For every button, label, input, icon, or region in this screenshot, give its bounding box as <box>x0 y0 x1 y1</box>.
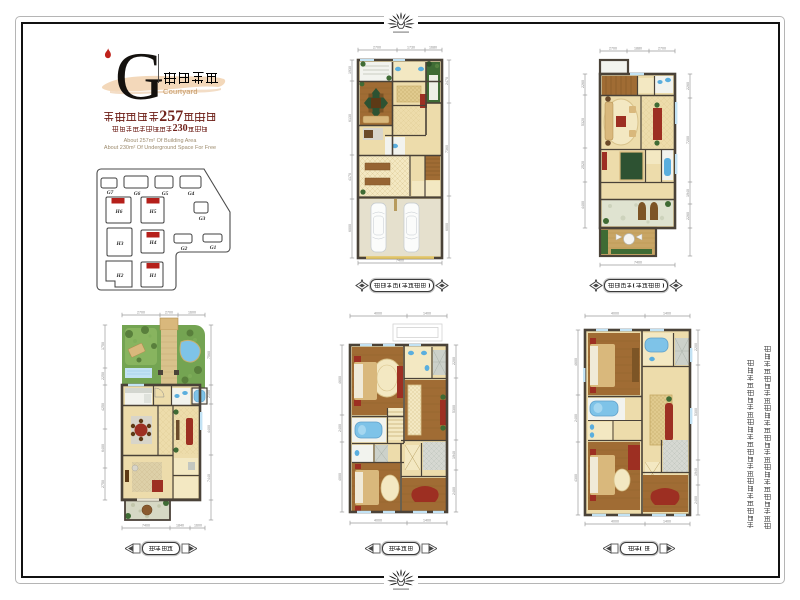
svg-text:H1: H1 <box>149 273 157 279</box>
svg-text:2470: 2470 <box>445 77 449 85</box>
svg-text:7440: 7440 <box>207 474 211 482</box>
svg-text:4300: 4300 <box>574 474 578 482</box>
svg-text:2200: 2200 <box>694 343 698 351</box>
svg-text:1750: 1750 <box>101 342 105 350</box>
svg-text:1600: 1600 <box>188 311 196 315</box>
svg-text:H2: H2 <box>116 273 124 279</box>
svg-text:2700: 2700 <box>609 47 617 51</box>
svg-text:4600: 4600 <box>574 358 578 366</box>
svg-text:G2: G2 <box>181 246 188 252</box>
svg-text:5300: 5300 <box>452 405 456 413</box>
svg-text:1400: 1400 <box>423 312 431 316</box>
svg-text:2400: 2400 <box>452 487 456 495</box>
svg-text:G1: G1 <box>210 245 217 251</box>
svg-text:7400: 7400 <box>634 261 642 265</box>
svg-text:4000: 4000 <box>374 519 382 523</box>
svg-text:1940: 1940 <box>452 451 456 459</box>
svg-text:1680: 1680 <box>429 46 437 50</box>
svg-text:2400: 2400 <box>574 414 578 422</box>
svg-text:2200: 2200 <box>452 357 456 365</box>
svg-text:1730: 1730 <box>407 46 415 50</box>
svg-text:1930: 1930 <box>348 66 352 74</box>
svg-text:2260: 2260 <box>686 212 690 220</box>
svg-text:2700: 2700 <box>165 311 173 315</box>
svg-text:2700: 2700 <box>658 47 666 51</box>
svg-text:4600: 4600 <box>338 376 342 384</box>
svg-text:7560: 7560 <box>207 351 211 359</box>
svg-text:1940: 1940 <box>686 189 690 197</box>
svg-text:H5: H5 <box>149 209 157 215</box>
svg-text:7400: 7400 <box>142 524 150 528</box>
svg-text:4250: 4250 <box>101 403 105 411</box>
svg-text:2750: 2750 <box>101 480 105 488</box>
svg-text:5300: 5300 <box>694 408 698 416</box>
svg-text:4400: 4400 <box>581 201 585 209</box>
svg-text:1400: 1400 <box>663 312 671 316</box>
svg-text:1840: 1840 <box>176 524 184 528</box>
svg-text:1400: 1400 <box>663 520 671 524</box>
svg-text:4000: 4000 <box>338 473 342 481</box>
svg-text:H3: H3 <box>116 241 124 247</box>
svg-text:2400: 2400 <box>338 424 342 432</box>
svg-text:2700: 2700 <box>137 311 145 315</box>
svg-text:1400: 1400 <box>423 519 431 523</box>
svg-text:7200: 7200 <box>686 136 690 144</box>
svg-text:6130: 6130 <box>348 114 352 122</box>
svg-text:1940: 1940 <box>694 468 698 476</box>
svg-text:2520: 2520 <box>581 161 585 169</box>
svg-text:6400: 6400 <box>101 444 105 452</box>
svg-text:G6: G6 <box>134 191 141 197</box>
svg-text:2260: 2260 <box>686 82 690 90</box>
svg-text:1880: 1880 <box>634 47 642 51</box>
svg-text:6000: 6000 <box>445 223 449 231</box>
svg-text:H6: H6 <box>115 209 123 215</box>
svg-text:4000: 4000 <box>611 312 619 316</box>
svg-text:G5: G5 <box>162 191 169 197</box>
svg-text:2400: 2400 <box>694 496 698 504</box>
svg-text:H4: H4 <box>149 240 157 246</box>
svg-text:1600: 1600 <box>194 524 202 528</box>
svg-text:4000: 4000 <box>611 520 619 524</box>
svg-text:5320: 5320 <box>581 118 585 126</box>
svg-text:G3: G3 <box>199 216 206 222</box>
svg-text:4000: 4000 <box>374 312 382 316</box>
svg-text:4400: 4400 <box>207 425 211 433</box>
svg-text:2250: 2250 <box>101 372 105 380</box>
svg-text:4170: 4170 <box>348 173 352 181</box>
svg-text:7360: 7360 <box>445 145 449 153</box>
svg-text:2700: 2700 <box>373 46 381 50</box>
svg-text:2260: 2260 <box>581 80 585 88</box>
svg-text:G4: G4 <box>188 191 195 197</box>
svg-text:6000: 6000 <box>348 224 352 232</box>
svg-text:G7: G7 <box>107 190 114 196</box>
